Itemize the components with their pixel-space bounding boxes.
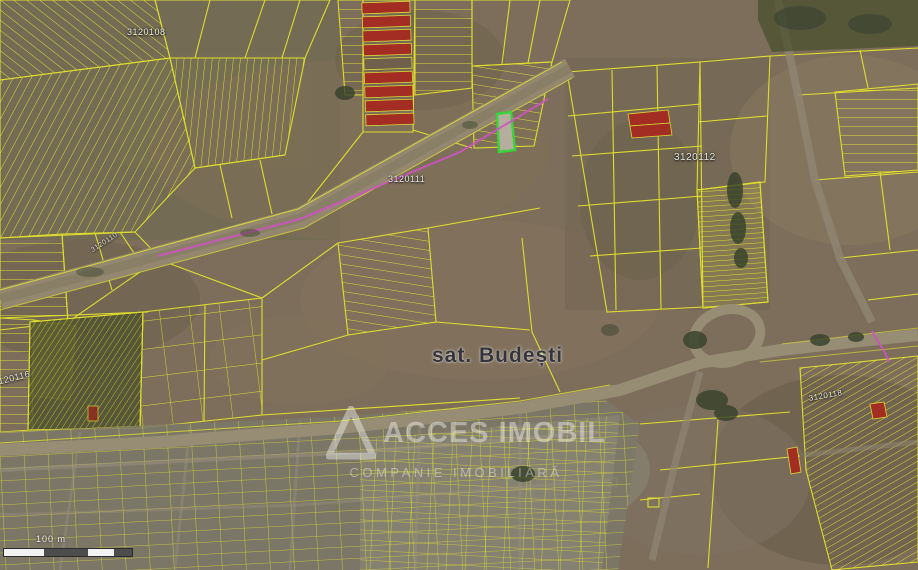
cadastral-label: 3120112 (674, 152, 716, 163)
map-canvas[interactable] (0, 0, 918, 570)
highlighted-parcel[interactable] (497, 112, 515, 152)
map-viewport[interactable]: 3120108 3120111 3120112 3120110 3120116 … (0, 0, 918, 570)
place-label: sat. Budești (432, 344, 563, 368)
scale-bar (3, 548, 133, 557)
cadastral-label: 3120111 (388, 174, 425, 184)
cadastral-label: 3120108 (127, 27, 166, 37)
scale-bar-label: 100 m (36, 534, 66, 544)
